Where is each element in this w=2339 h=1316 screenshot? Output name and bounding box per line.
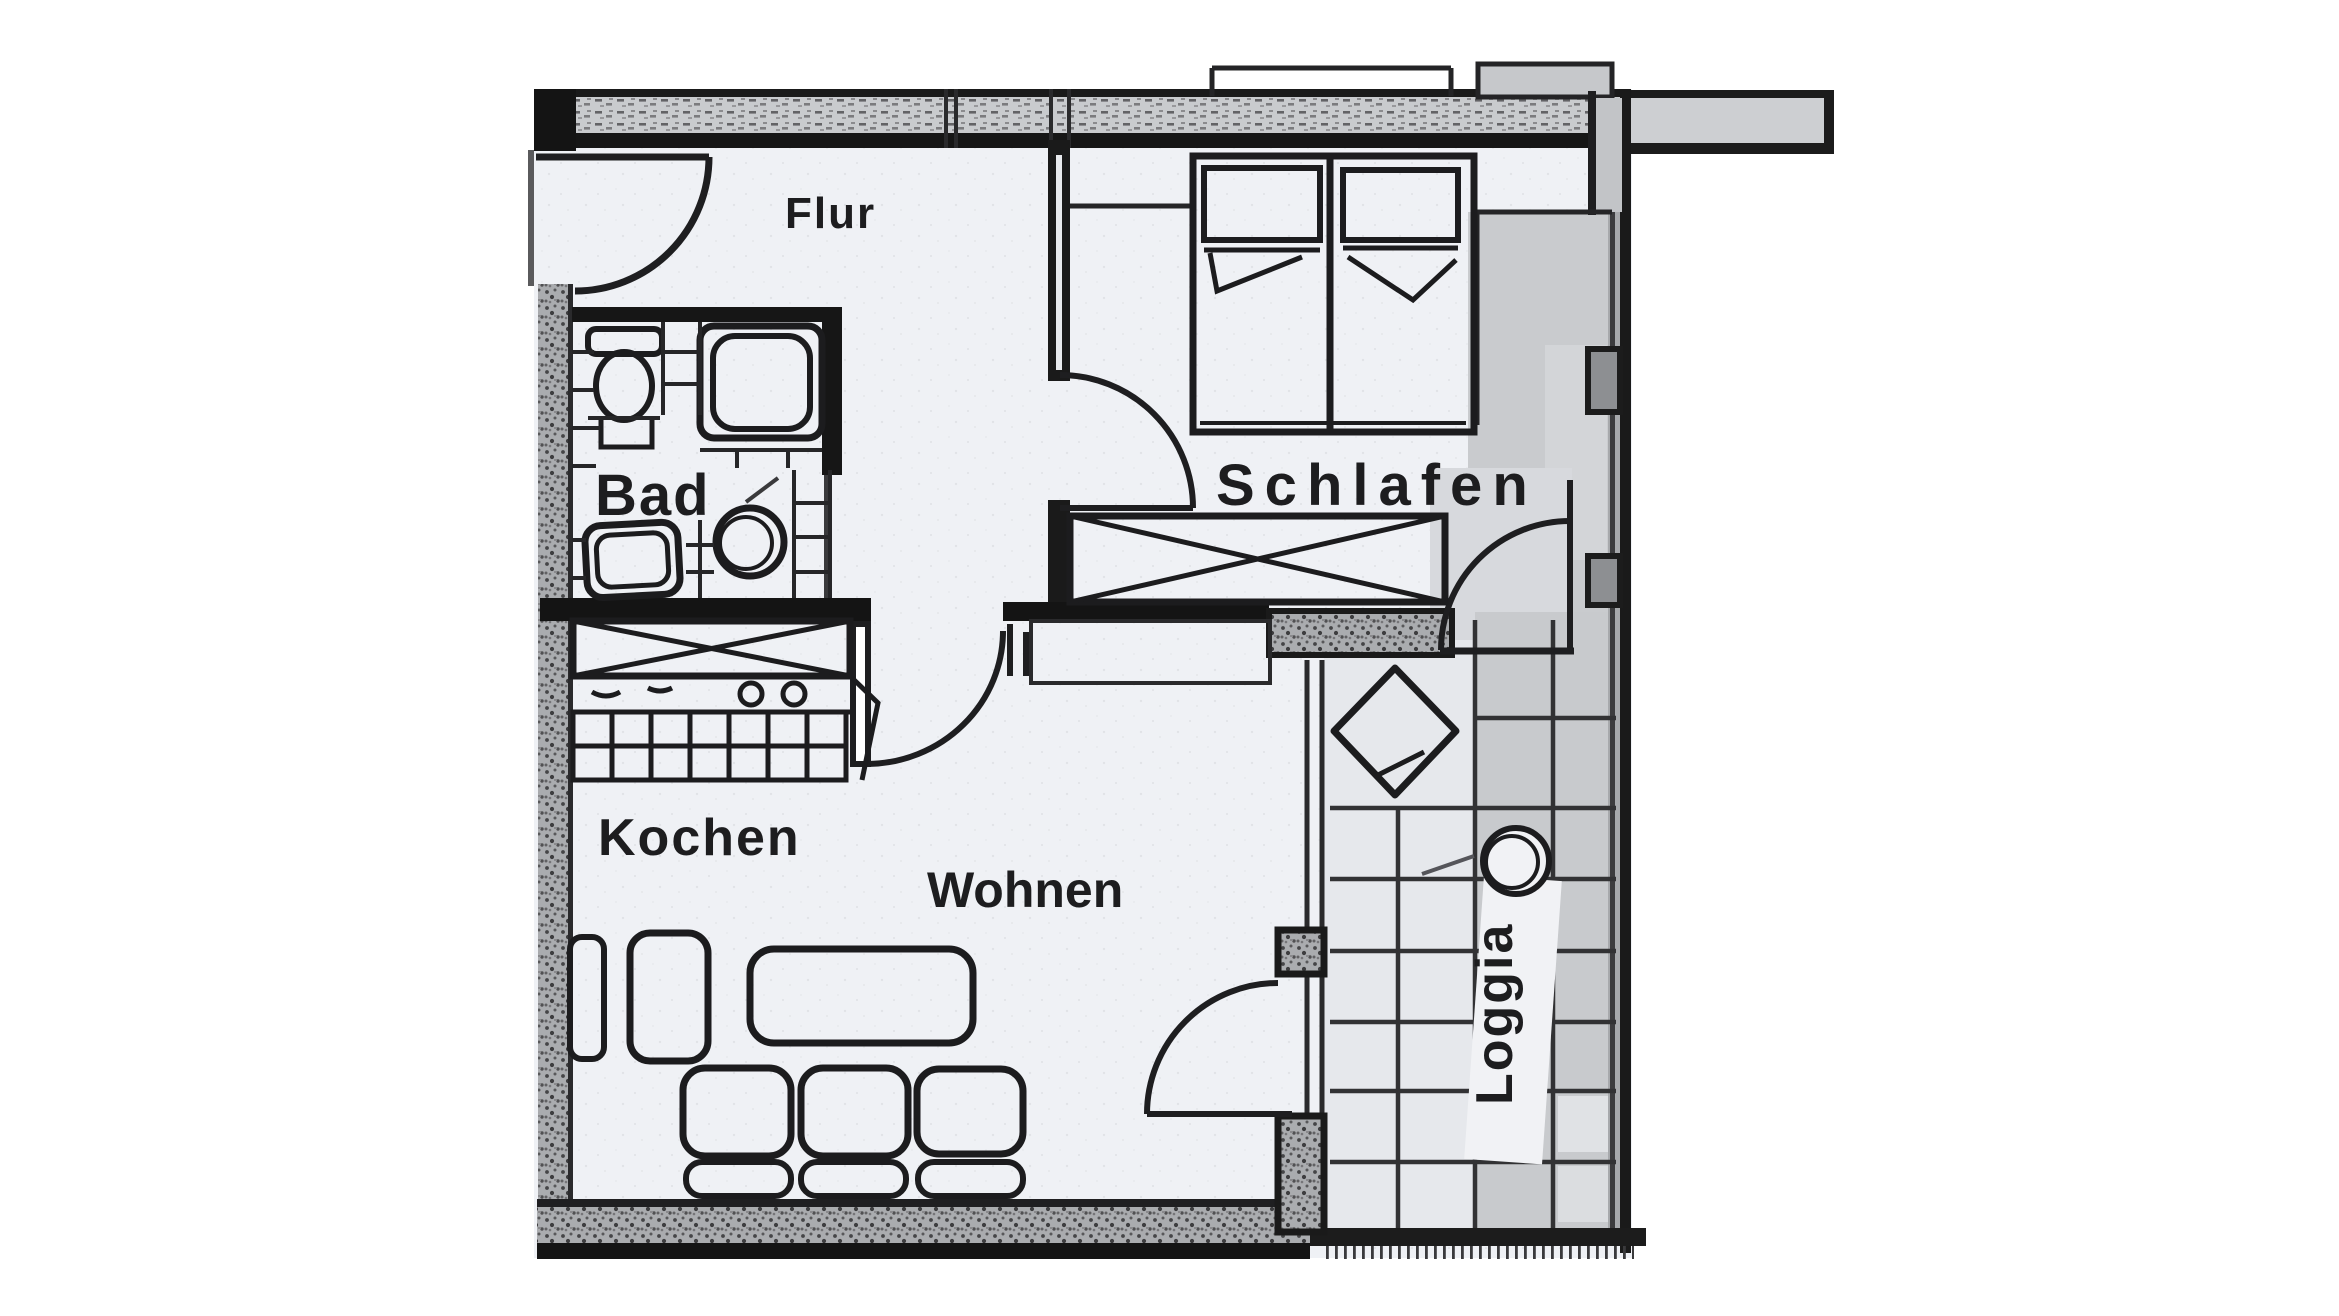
svg-text:Wohnen: Wohnen xyxy=(927,862,1123,918)
svg-text:Schlafen: Schlafen xyxy=(1216,453,1538,518)
svg-text:Kochen: Kochen xyxy=(598,809,801,867)
svg-text:Flur: Flur xyxy=(785,189,876,238)
svg-text:Bad: Bad xyxy=(595,463,711,528)
svg-text:Loggia: Loggia xyxy=(1466,923,1524,1105)
